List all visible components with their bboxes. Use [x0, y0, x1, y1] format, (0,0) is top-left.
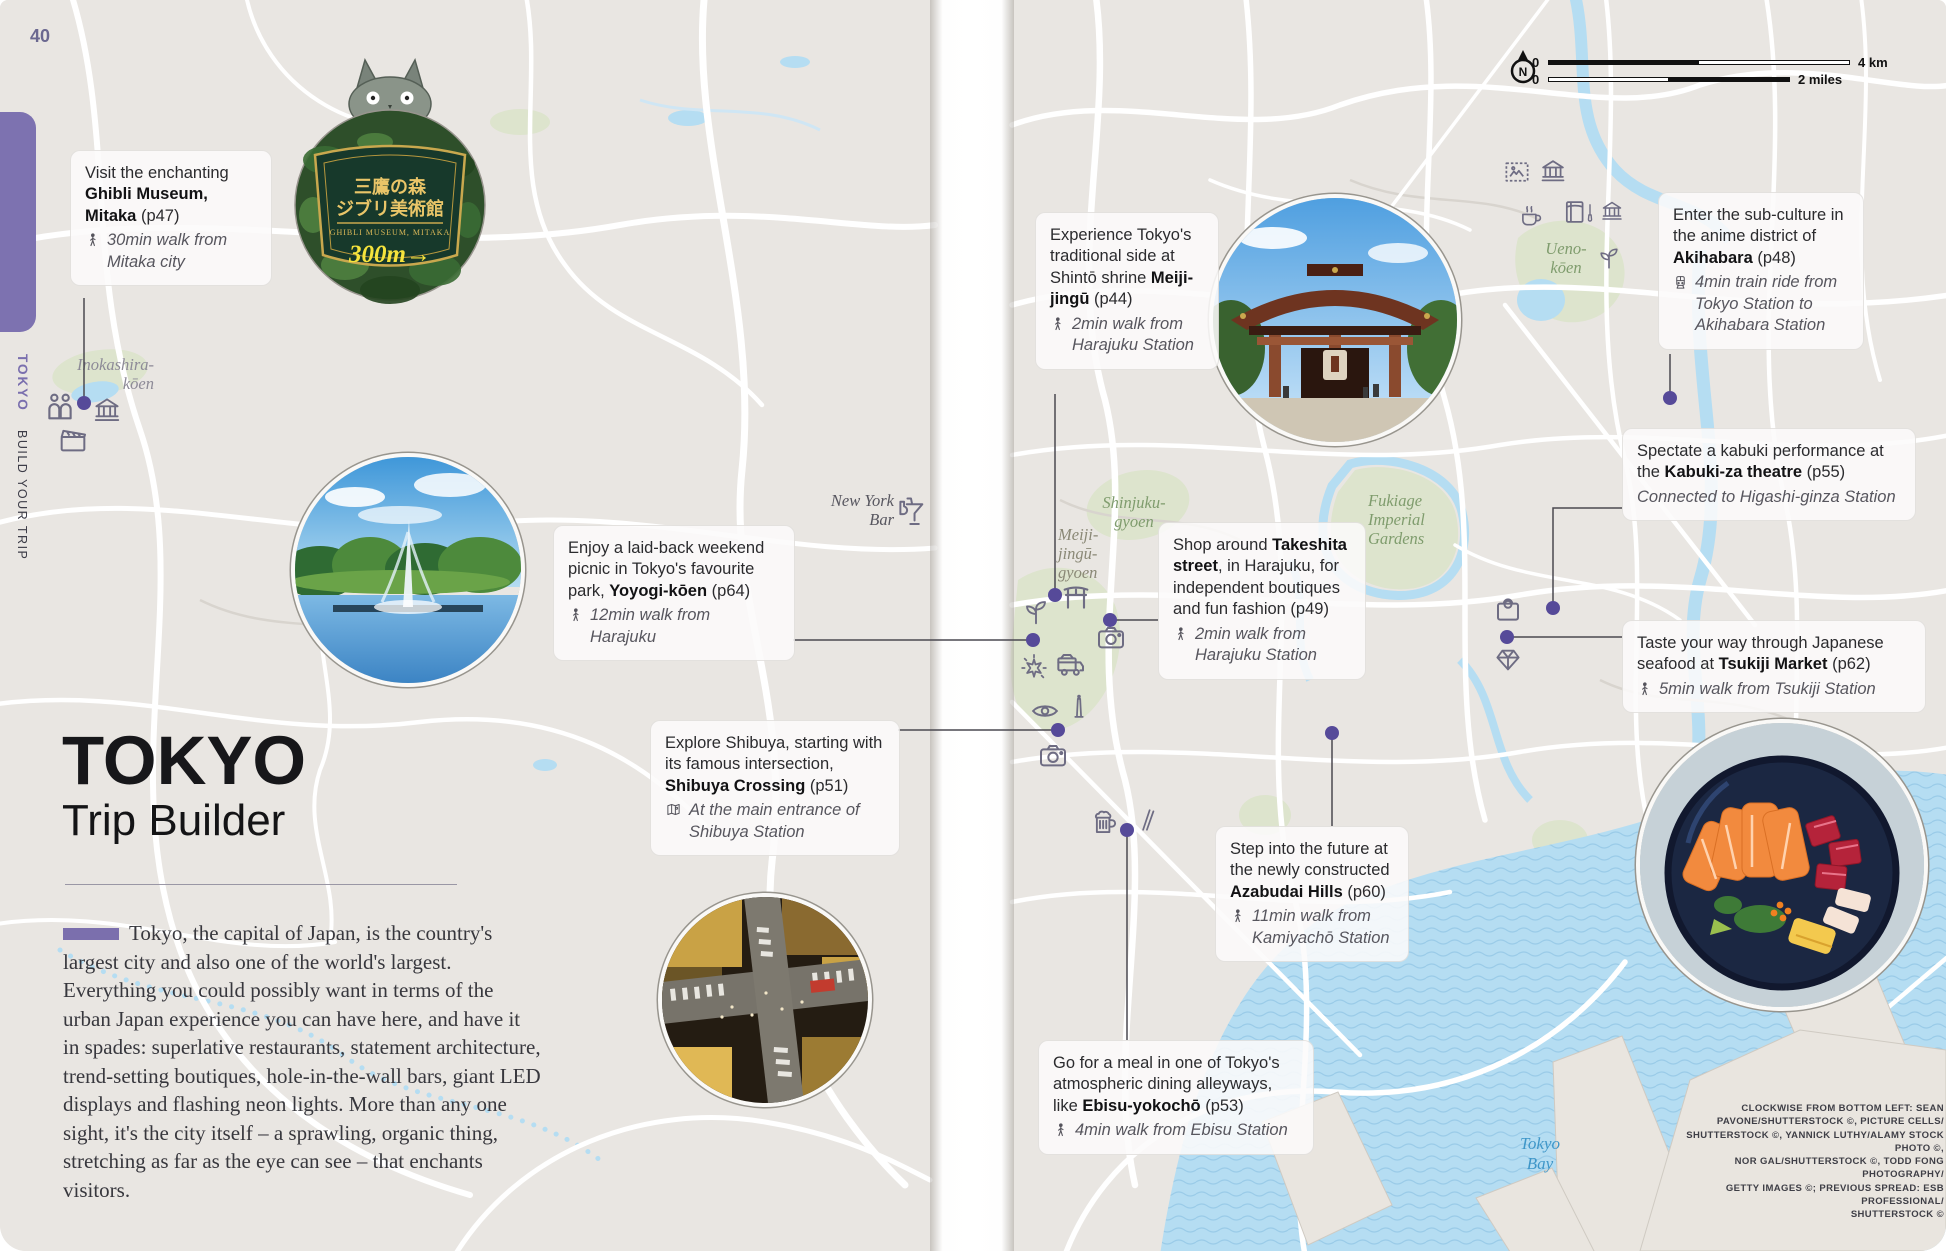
- callout-text: Taste your way through Japanese seafood …: [1637, 633, 1911, 676]
- museum-icon: [92, 395, 122, 425]
- sprout-icon: [1021, 597, 1051, 627]
- intro-paragraph: Tokyo, the capital of Japan, is the coun…: [63, 919, 541, 1204]
- callout-highlight: Akihabara: [1673, 249, 1753, 267]
- sign-distance: 300m→: [348, 241, 431, 268]
- museum-icon: [1600, 199, 1624, 223]
- chapter-subtitle-vertical: BUILD YOUR TRIP: [15, 430, 29, 560]
- callout-text: Enjoy a laid-back weekend picnic in Toky…: [568, 538, 780, 602]
- map-icon: [665, 802, 682, 817]
- scale-mi-zero: 0: [1532, 72, 1539, 87]
- walk-icon: [85, 232, 100, 249]
- people-icon: [43, 390, 77, 424]
- transit-note: 11min walk from Kamiyachō Station: [1230, 906, 1394, 949]
- callout-text: Visit the enchanting Ghibli Museum, Mita…: [85, 163, 257, 227]
- walk-icon: [1053, 1122, 1068, 1139]
- tower-icon: [1065, 690, 1093, 724]
- map-label-tokyo-bay: Tokyo Bay: [1500, 1134, 1580, 1173]
- scale-mi-label: 2 miles: [1798, 72, 1842, 87]
- museum-icon: [1539, 157, 1567, 185]
- intro-text: Tokyo, the capital of Japan, is the coun…: [63, 921, 541, 1202]
- callout-highlight: Tsukiji Market: [1719, 655, 1828, 673]
- camera-icon: [1037, 740, 1069, 772]
- callout-text: Go for a meal in one of Tokyo's atmosphe…: [1053, 1053, 1299, 1117]
- transit-note: 4min walk from Ebisu Station: [1053, 1120, 1299, 1141]
- map-label-inokashira: Inokashira- kōen: [70, 356, 154, 394]
- transit-note: 12min walk from Harajuku: [568, 605, 780, 648]
- chopsticks-icon: [1135, 806, 1161, 834]
- photo-credits: CLOCKWISE FROM BOTTOM LEFT: SEAN PAVONE/…: [1654, 1102, 1944, 1222]
- title-block: TOKYO Trip Builder: [62, 726, 306, 843]
- walk-icon: [1637, 681, 1652, 698]
- walk-icon: [1050, 316, 1065, 333]
- callout-highlight: Yoyogi-kōen: [609, 582, 707, 600]
- callout-text: Spectate a kabuki performance at the Kab…: [1637, 441, 1901, 484]
- page-gutter: [930, 0, 1014, 1251]
- callout-tsukiji-market: Taste your way through Japanese seafood …: [1622, 620, 1926, 713]
- coffee-icon: [1518, 203, 1544, 229]
- transit-note: 2min walk from Harajuku Station: [1050, 314, 1204, 357]
- train-icon: [1673, 274, 1688, 291]
- guidebook-spread: 40 TOKYO BUILD YOUR TRIP N 0 4 km 0 2 mi…: [0, 0, 1946, 1251]
- scale-bar-mi-open: [1548, 77, 1670, 82]
- stamp-icon: [1502, 157, 1532, 187]
- scale-bar-mi-solid: [1668, 77, 1790, 82]
- callout-yoyogi-koen: Enjoy a laid-back weekend picnic in Toky…: [553, 525, 795, 661]
- chapter-tab: [0, 112, 36, 332]
- scale-bar-km-solid: [1548, 60, 1698, 65]
- callout-text: Explore Shibuya, starting with its famou…: [665, 733, 885, 797]
- title-divider: [65, 884, 457, 885]
- gem-icon: [1493, 645, 1523, 675]
- meiji-shrine-photo: [1213, 198, 1457, 442]
- callout-highlight: Ebisu-yokochō: [1082, 1097, 1200, 1115]
- map-label-ueno-koen: Ueno- kōen: [1532, 240, 1600, 278]
- torii-icon: [1060, 581, 1092, 613]
- map-label-new-york-bar: New York Bar: [808, 492, 894, 530]
- sprout-icon: [1596, 245, 1622, 271]
- walk-icon: [568, 607, 583, 624]
- beer-icon: [1090, 807, 1120, 837]
- callout-meiji-jingu: Experience Tokyo's traditional side at S…: [1035, 212, 1219, 370]
- callout-ghibli-museum: Visit the enchanting Ghibli Museum, Mita…: [70, 150, 272, 286]
- callout-akihabara: Enter the sub-culture in the anime distr…: [1658, 192, 1864, 350]
- scale-km-label: 4 km: [1858, 55, 1888, 70]
- eye-icon: [1030, 696, 1060, 726]
- callout-text: Shop around Takeshita street, in Harajuk…: [1173, 535, 1351, 621]
- callout-text: Enter the sub-culture in the anime distr…: [1673, 205, 1849, 269]
- yoyogi-park-photo: [295, 457, 521, 683]
- walk-icon: [1230, 908, 1245, 925]
- callout-highlight: Azabudai Hills: [1230, 883, 1343, 901]
- callout-text: Step into the future at the newly constr…: [1230, 839, 1394, 903]
- callout-highlight: Shibuya Crossing: [665, 777, 805, 795]
- transit-note: 30min walk from Mitaka city: [85, 230, 257, 273]
- callout-azabudai-hills: Step into the future at the newly constr…: [1215, 826, 1409, 962]
- transit-note: 2min walk from Harajuku Station: [1173, 624, 1351, 667]
- map-label-fukiage-gardens: Fukiage Imperial Gardens: [1368, 492, 1448, 549]
- chapter-title-vertical: TOKYO: [15, 354, 30, 412]
- callout-takeshita-street: Shop around Takeshita street, in Harajuk…: [1158, 522, 1366, 680]
- transit-note: 4min train ride from Tokyo Station to Ak…: [1673, 272, 1849, 336]
- callout-text: Experience Tokyo's traditional side at S…: [1050, 225, 1204, 311]
- walk-icon: [1173, 626, 1188, 643]
- sign-en-line: GHIBLI MUSEUM, MITAKA: [330, 228, 451, 237]
- map-label-meiji-jingu-gyoen: Meiji- jingū- gyoen: [1058, 526, 1122, 583]
- callout-ebisu-yokocho: Go for a meal in one of Tokyo's atmosphe…: [1038, 1040, 1314, 1155]
- transit-note: At the main entrance of Shibuya Station: [665, 800, 885, 843]
- callout-highlight: Kabuki-za theatre: [1665, 463, 1803, 481]
- clapperboard-icon: [57, 425, 89, 457]
- sashimi-bowl-photo: [1640, 723, 1924, 1007]
- cocktail-icon: [894, 495, 928, 529]
- chapter-sidebar-label: TOKYO BUILD YOUR TRIP: [13, 354, 31, 561]
- sign-jp-line2: ジブリ美術館: [336, 198, 444, 219]
- sparkle-icon: [1019, 653, 1049, 683]
- callout-kabuki-za: Spectate a kabuki performance at the Kab…: [1622, 428, 1916, 521]
- transit-note: 5min walk from Tsukiji Station: [1637, 679, 1911, 700]
- svg-text:N: N: [1519, 65, 1528, 79]
- transit-note: Connected to Higashi-ginza Station: [1637, 487, 1901, 508]
- page-number: 40: [30, 26, 50, 47]
- scale-km-zero: 0: [1532, 55, 1539, 70]
- food-truck-icon: [1055, 649, 1087, 681]
- callout-shibuya-crossing: Explore Shibuya, starting with its famou…: [650, 720, 900, 856]
- page-title: TOKYO: [62, 726, 306, 795]
- page-subtitle: Trip Builder: [62, 799, 306, 843]
- ghibli-sign-photo: 三鷹の森 ジブリ美術館 GHIBLI MUSEUM, MITAKA 300m→: [285, 50, 495, 310]
- paintbrush-icon: [1579, 202, 1601, 226]
- intro-dash-marker: [63, 928, 119, 940]
- sign-jp-line1: 三鷹の森: [354, 176, 427, 197]
- shopping-bag-icon: [1492, 593, 1524, 625]
- scale-bar-km-open: [1698, 60, 1850, 65]
- camera-icon: [1095, 622, 1127, 654]
- shibuya-crossing-photo: [662, 897, 868, 1103]
